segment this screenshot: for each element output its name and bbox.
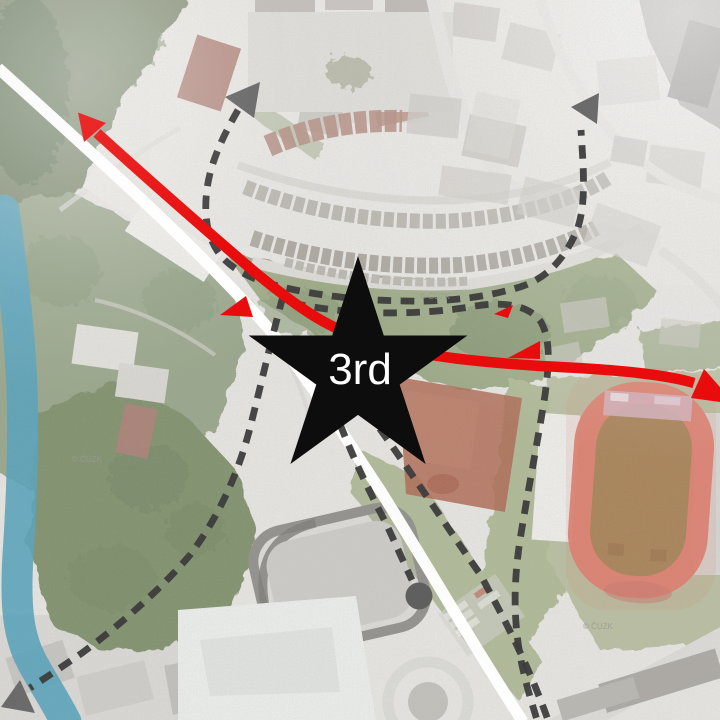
svg-text:© ČÚZK: © ČÚZK — [583, 622, 614, 631]
svg-text:© ČÚZK: © ČÚZK — [420, 292, 451, 301]
svg-text:© ČÚZK: © ČÚZK — [72, 455, 103, 464]
